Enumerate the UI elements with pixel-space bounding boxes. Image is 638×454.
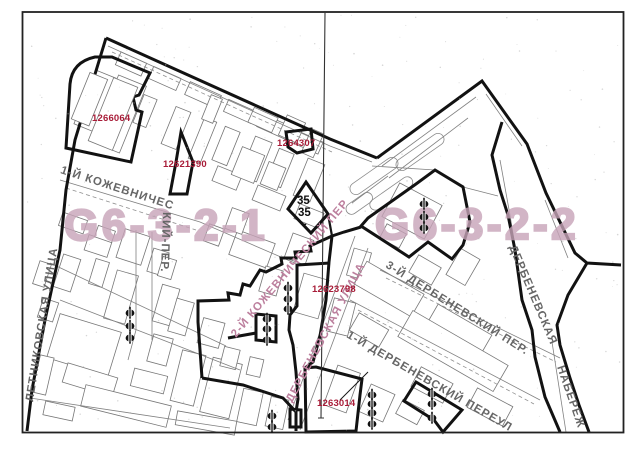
- svg-text:1266064: 1266064: [92, 113, 131, 124]
- svg-text:35: 35: [297, 195, 310, 207]
- svg-text:G6-3-2-2: G6-3-2-2: [375, 200, 579, 249]
- svg-text:1264307: 1264307: [277, 138, 315, 149]
- svg-text:12623798: 12623798: [312, 284, 356, 295]
- svg-text:1263014: 1263014: [317, 398, 356, 409]
- svg-text:-: -: [303, 218, 307, 230]
- svg-text:КИЙ-ПЕР.: КИЙ-ПЕР.: [158, 212, 173, 273]
- svg-text:12621390: 12621390: [163, 159, 207, 170]
